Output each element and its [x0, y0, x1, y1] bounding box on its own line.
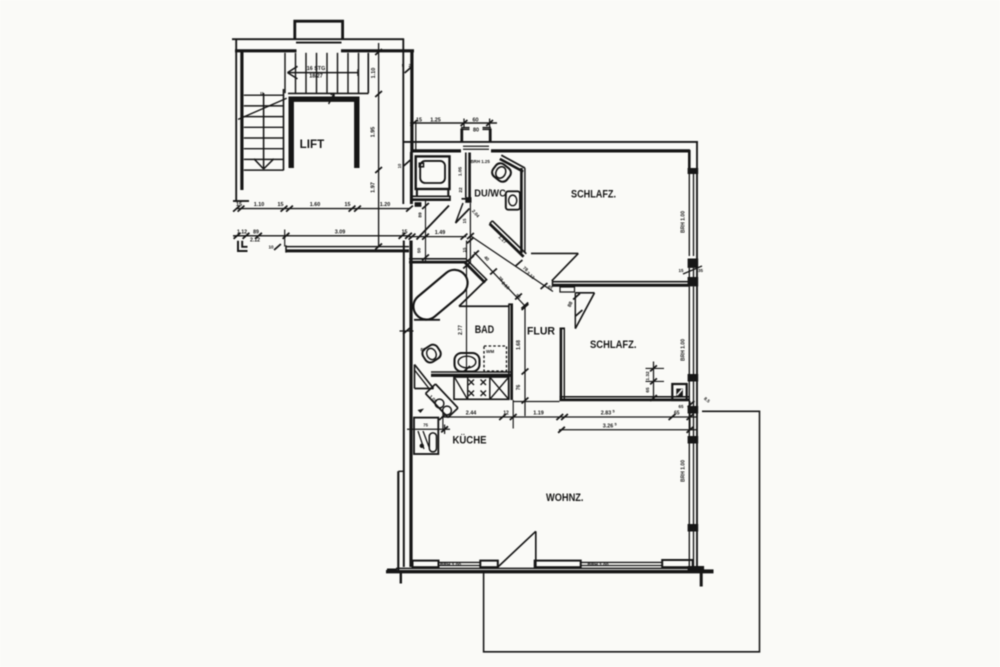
- svg-text:22: 22: [458, 187, 464, 193]
- svg-text:89: 89: [418, 212, 424, 218]
- svg-text:KÜCHE: KÜCHE: [453, 434, 487, 447]
- svg-text:1.20: 1.20: [380, 202, 391, 208]
- svg-text:1.60: 1.60: [310, 202, 321, 208]
- svg-text:LIFT: LIFT: [300, 139, 325, 151]
- svg-text:BRH 1.00: BRH 1.00: [681, 339, 687, 361]
- svg-text:BRH 1.00: BRH 1.00: [681, 460, 687, 482]
- svg-text:1.32: 1.32: [645, 371, 651, 381]
- svg-text:3.26: 3.26: [603, 424, 614, 430]
- svg-text:1.68: 1.68: [516, 340, 522, 350]
- svg-text:u: u: [260, 91, 263, 97]
- svg-text:15: 15: [345, 202, 351, 208]
- svg-text:65: 65: [645, 387, 651, 393]
- svg-text:FLUR: FLUR: [527, 326, 555, 338]
- svg-text:65: 65: [679, 404, 684, 409]
- svg-text:65: 65: [674, 410, 680, 416]
- svg-text:80: 80: [473, 127, 479, 133]
- svg-text:1.95: 1.95: [370, 127, 376, 138]
- svg-text:BRH 1.00: BRH 1.00: [440, 562, 461, 568]
- svg-text:89: 89: [253, 229, 259, 235]
- svg-text:1.19: 1.19: [533, 410, 544, 416]
- svg-text:15: 15: [236, 202, 242, 208]
- svg-text:3.09: 3.09: [335, 229, 346, 235]
- svg-text:1.97: 1.97: [370, 182, 376, 193]
- svg-text:2.44: 2.44: [466, 410, 477, 416]
- svg-text:BRH 1.00: BRH 1.00: [681, 211, 687, 233]
- svg-text:2.83: 2.83: [601, 410, 612, 416]
- svg-text:WOHNZ.: WOHNZ.: [546, 492, 584, 504]
- svg-text:1.05: 1.05: [458, 167, 464, 177]
- svg-text:5: 5: [612, 409, 614, 413]
- svg-text:1.25: 1.25: [430, 117, 441, 123]
- svg-text:50: 50: [417, 248, 423, 254]
- svg-text:SCHLAFZ.: SCHLAFZ.: [571, 188, 616, 200]
- svg-text:12: 12: [503, 410, 509, 416]
- svg-text:80: 80: [421, 347, 426, 352]
- svg-text:10: 10: [397, 163, 402, 168]
- svg-text:18/27: 18/27: [309, 74, 323, 80]
- svg-text:35: 35: [698, 268, 703, 273]
- svg-text:BRH 1.00: BRH 1.00: [588, 562, 609, 568]
- svg-text:60: 60: [473, 117, 479, 123]
- svg-text:75: 75: [423, 423, 428, 428]
- svg-text:10: 10: [268, 245, 274, 250]
- svg-text:15: 15: [278, 202, 284, 208]
- svg-text:15: 15: [416, 117, 422, 123]
- svg-text:15: 15: [462, 218, 467, 223]
- svg-text:2.12: 2.12: [250, 238, 260, 244]
- svg-text:1.12: 1.12: [237, 229, 247, 235]
- svg-text:25: 25: [409, 63, 414, 68]
- svg-text:76: 76: [516, 385, 522, 391]
- svg-text:1.10: 1.10: [254, 202, 265, 208]
- svg-text:SCHLAFZ.: SCHLAFZ.: [590, 339, 637, 351]
- svg-text:BAD: BAD: [475, 324, 495, 336]
- svg-text:WM: WM: [486, 349, 494, 354]
- svg-text:5: 5: [614, 423, 616, 427]
- svg-text:15: 15: [679, 268, 684, 273]
- svg-text:2.77: 2.77: [458, 325, 464, 335]
- svg-text:15: 15: [402, 229, 408, 235]
- svg-text:DU/WC: DU/WC: [474, 188, 506, 200]
- svg-text:1.10: 1.10: [371, 68, 377, 79]
- svg-text:BRH 1.25: BRH 1.25: [471, 159, 491, 164]
- svg-text:1.49: 1.49: [435, 230, 446, 236]
- svg-text:16 STG: 16 STG: [307, 66, 326, 72]
